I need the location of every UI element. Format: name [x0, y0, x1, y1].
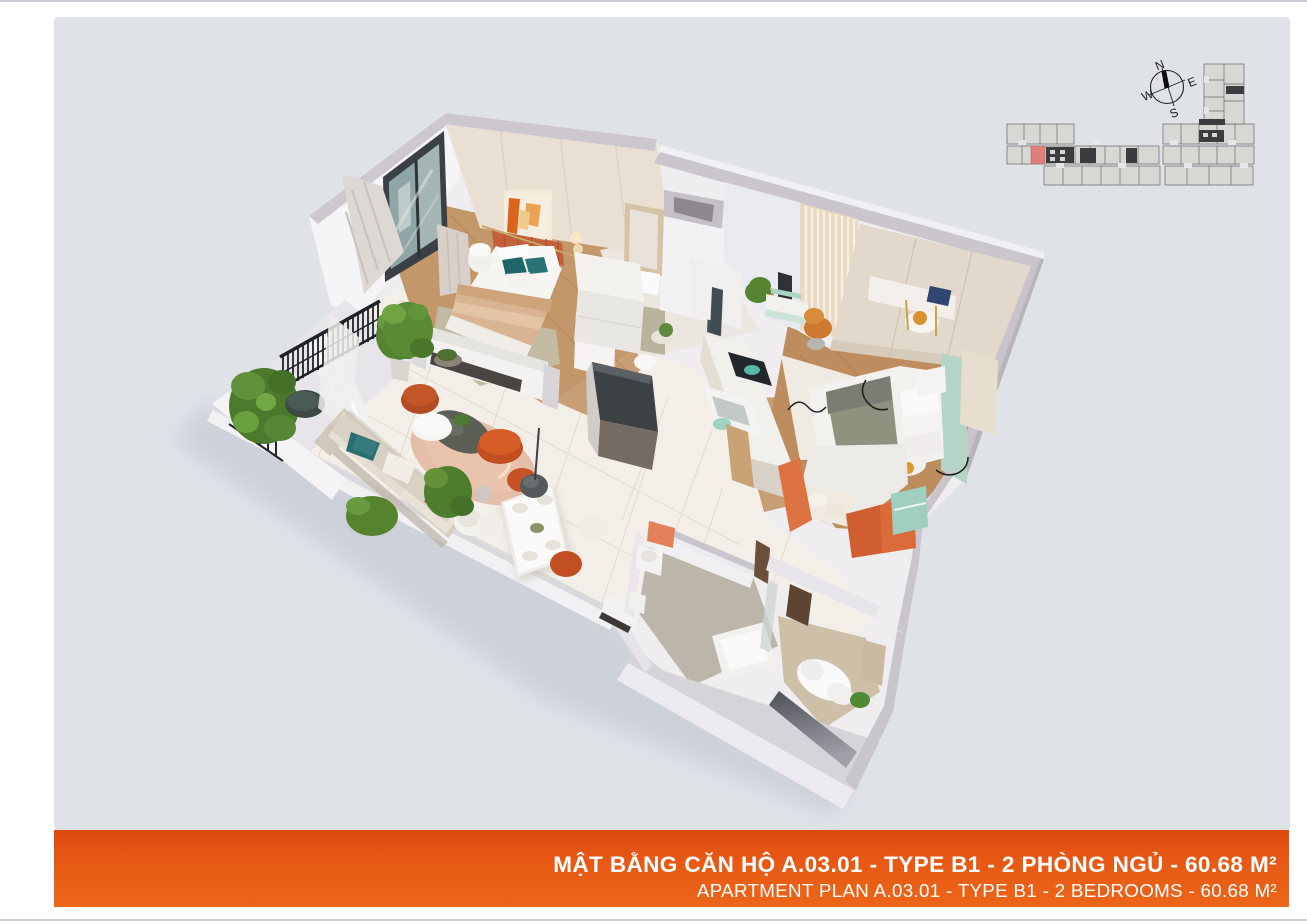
svg-text:APARTMENT PLAN A.03.01 - TYPE: APARTMENT PLAN A.03.01 - TYPE B1 - 2 BED… — [697, 880, 1277, 901]
svg-text:MẬT BẰNG CĂN HỘ A.03.01 - TYPE: MẬT BẰNG CĂN HỘ A.03.01 - TYPE B1 - 2 PH… — [553, 852, 1277, 877]
